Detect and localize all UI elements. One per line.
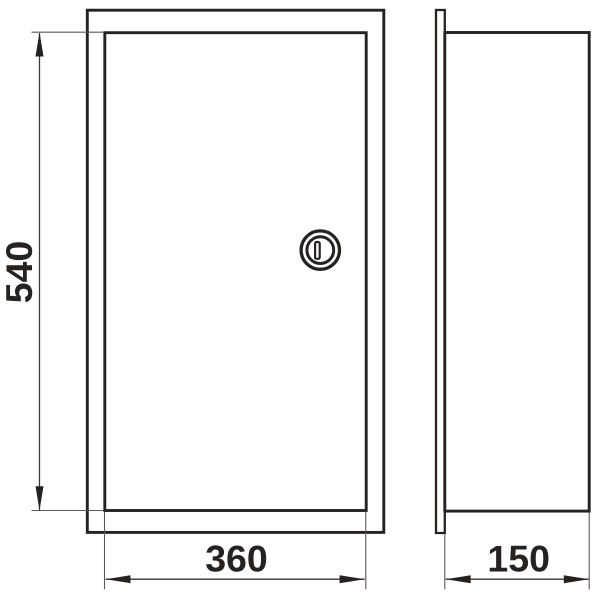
svg-text:540: 540 [0, 241, 40, 304]
svg-text:360: 360 [205, 538, 268, 580]
svg-text:150: 150 [487, 538, 550, 580]
